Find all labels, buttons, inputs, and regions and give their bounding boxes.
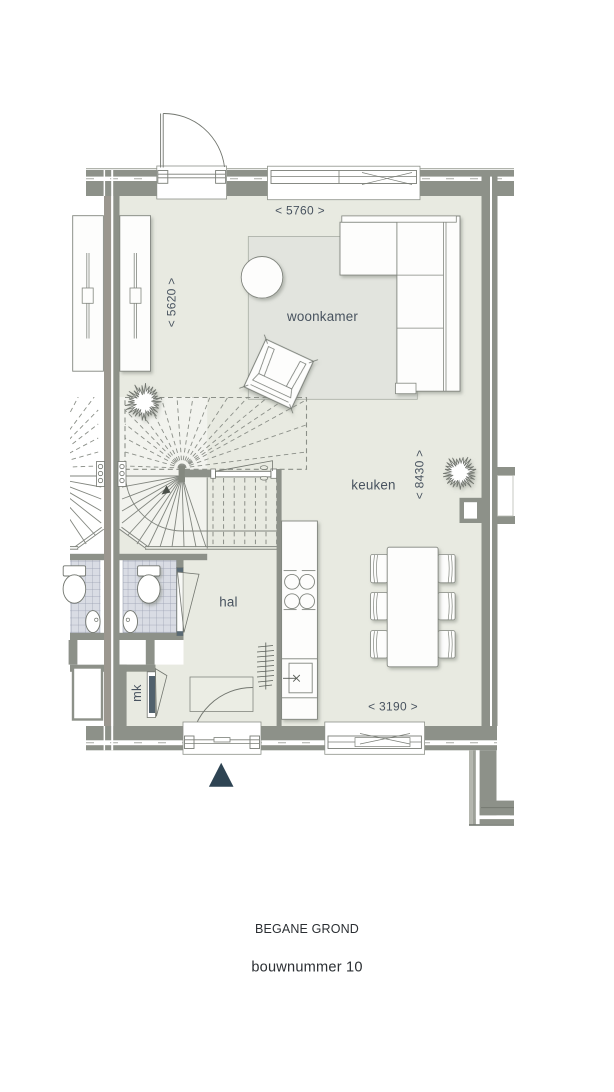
svg-text:< 5620 >: < 5620 > [165, 277, 179, 327]
svg-text:woonkamer: woonkamer [286, 309, 358, 324]
svg-text:hal: hal [219, 595, 237, 610]
svg-text:< 5760 >: < 5760 > [275, 204, 325, 218]
svg-text:mk: mk [129, 684, 144, 702]
svg-text:< 3190 >: < 3190 > [368, 700, 418, 714]
svg-text:bouwnummer 10: bouwnummer 10 [251, 960, 362, 976]
svg-text:keuken: keuken [351, 478, 395, 493]
svg-text:BEGANE GROND: BEGANE GROND [255, 922, 359, 936]
svg-text:< 8430 >: < 8430 > [413, 450, 427, 500]
